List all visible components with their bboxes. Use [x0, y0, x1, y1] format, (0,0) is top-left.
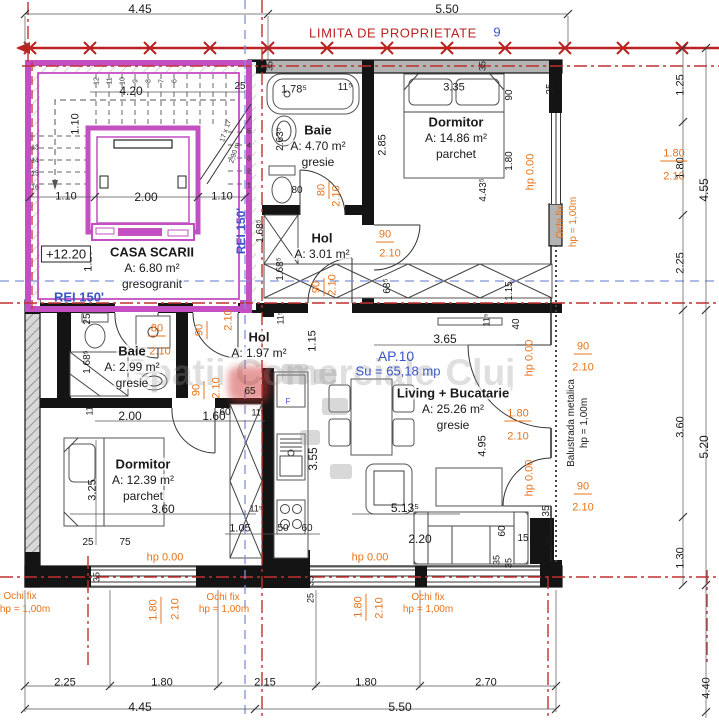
room-label: A: 25.26 m²: [420, 403, 486, 415]
dimension-label: 2.20: [408, 533, 431, 545]
watermark-logo: [330, 464, 352, 479]
dimension-label: 15: [517, 534, 528, 544]
stair-step-number: 7: [159, 79, 166, 83]
dimension-label: 60: [498, 525, 508, 536]
dimension-label: 2.63⁵: [276, 127, 286, 151]
dimension-label: 1.80: [505, 151, 515, 170]
dimension-label: 60: [301, 524, 312, 534]
dimension-label: 11⁵: [86, 402, 95, 415]
apartment-id: AP.10: [378, 349, 414, 363]
room-label: gresie: [114, 377, 151, 389]
floor-plan: Spatii Comerciale Cluj 4.455.504.20251.1…: [0, 0, 719, 720]
watermark-logo: [300, 430, 320, 445]
opening-dimension-label: 90: [574, 342, 592, 355]
dimension-label: 35: [479, 61, 488, 71]
fire-rating-label: REI 150': [235, 208, 247, 254]
opening-dimension-label: 2.10: [379, 249, 400, 260]
opening-dimension-label: 1.80: [149, 596, 162, 623]
opening-dimension-label: Ochi fix: [206, 593, 239, 603]
opening-dimension-label: 2.10: [507, 432, 528, 443]
opening-dimension-label: 2.10: [332, 185, 343, 206]
dimension-label: 1.30: [676, 547, 687, 568]
stair-step-number: 14: [31, 158, 39, 165]
stair-step-number: 11: [107, 77, 114, 84]
opening-dimension-label: 1.80: [504, 409, 531, 422]
room-label: Hol: [310, 232, 335, 245]
dimension-label: 40: [512, 318, 522, 329]
opening-dimension-label: hp = 1,00m: [403, 605, 453, 615]
opening-dimension-label: 2.10: [224, 309, 235, 330]
opening-dimension-label: 90: [574, 482, 592, 495]
stair-step-number: 15: [31, 171, 39, 178]
dimension-label: 25: [82, 538, 93, 548]
dimension-label: 1.68⁵: [83, 350, 93, 374]
opening-dimension-label: 2.10: [375, 597, 386, 618]
room-label: Baie: [116, 345, 147, 358]
dimension-label: 4.45: [128, 701, 151, 713]
opening-dimension-label: hp = 1,00m: [0, 605, 50, 615]
dimension-label: 1.10: [55, 192, 76, 203]
dimension-label: 5.20: [698, 435, 710, 458]
axis-number: 9: [493, 26, 500, 39]
watermark-logo: [322, 398, 348, 415]
boundary-label: LIMITA DE PROPRIETATE: [309, 27, 477, 40]
opening-dimension-label: 2.10: [663, 172, 684, 183]
dimension-label: 3.55: [307, 447, 319, 470]
elevator: [88, 128, 198, 240]
dimension-label: 2.00: [134, 191, 157, 203]
dimension-label: 5.50: [435, 3, 458, 15]
dimension-label: 1.78⁵: [281, 85, 307, 96]
dimension-label: 75: [119, 538, 130, 548]
property-limit-line: [16, 42, 719, 54]
dimension-label: 4.45: [128, 3, 151, 15]
room-label: A: 1.97 m²: [229, 347, 288, 359]
railing-note: hp = 1,00m: [580, 398, 590, 448]
stair-step-number: 10: [120, 77, 127, 85]
dimension-label: 4.55: [698, 178, 710, 201]
dimension-label: 5.50: [388, 701, 411, 713]
opening-dimension-label: 1.80: [354, 593, 367, 620]
dimension-label: 35: [493, 555, 502, 565]
dimension-label: 90: [505, 89, 515, 100]
dimension-label: 1.80: [355, 678, 376, 689]
dimension-label: 3.35: [443, 83, 464, 94]
opening-dimension-label: hp 0.00: [526, 154, 537, 191]
room-label: A: 4.70 m²: [288, 140, 347, 152]
dimension-label: 2.15: [254, 678, 275, 689]
dimension-label: 80: [291, 186, 302, 196]
dimension-label: 35: [542, 505, 552, 516]
dimension-label: 1.10: [71, 113, 82, 134]
opening-dimension-label: 90: [192, 381, 205, 399]
opening-dimension-label: 80: [317, 181, 330, 199]
opening-dimension-label: Ochi fix: [411, 593, 444, 603]
dimension-label: 65: [244, 387, 255, 397]
dimension-label: 1.68⁵: [256, 219, 266, 243]
opening-dimension-label: 1.80: [660, 149, 687, 162]
opening-dimension-label: 2.10: [171, 598, 182, 619]
stair-step-number: 4: [247, 143, 251, 150]
opening-dimension-label: Ochi fix: [3, 592, 36, 602]
room-label: Living + Bucatarie: [395, 387, 511, 400]
stair-step-number: 8: [146, 79, 153, 83]
stair-step-number: 6: [172, 79, 179, 83]
dimension-label: 4.95: [478, 435, 489, 456]
opening-dimension-label: hp 0.00: [525, 460, 536, 497]
room-label: A: 3.01 m²: [292, 248, 351, 260]
stair-step-number: 16: [31, 185, 39, 192]
coffee-table: [436, 468, 502, 506]
stair-step-number: 13: [31, 145, 39, 152]
room-label: Baie: [302, 124, 333, 137]
dimension-label: 11⁵: [338, 83, 353, 93]
stair-step-number: 1: [247, 183, 251, 190]
room-label: parchet: [434, 148, 478, 160]
dimension-label: 35: [307, 576, 316, 586]
opening-dimension-label: 2.10: [149, 347, 170, 358]
dimension-label: 25: [234, 82, 245, 92]
room-label: Dormitor: [114, 458, 173, 471]
dimension-label: 35: [545, 534, 555, 545]
opening-dimension-label: hp 0.00: [525, 340, 536, 377]
fire-rating-label: REI 150': [54, 291, 104, 304]
opening-dimension-label: 2.10: [212, 377, 223, 398]
dimension-label: 3.60: [676, 416, 687, 437]
dimension-label: 11⁵: [277, 311, 286, 324]
dimension-label: 2.85: [378, 134, 389, 155]
room-label: gresie: [300, 156, 337, 168]
stair-step-number: 9: [133, 79, 140, 83]
stair-step-number: 12: [94, 77, 101, 85]
dimension-label: 4.20: [119, 85, 142, 97]
dimension-label: 35: [266, 61, 275, 71]
dimension-label: 1.80: [151, 678, 172, 689]
dimension-label: 4.40: [702, 677, 713, 698]
room-label: A: 6.80 m²: [122, 262, 181, 274]
opening-dimension-label: 2.10: [572, 503, 593, 514]
dimension-label: 11⁵: [483, 313, 492, 326]
dimension-label: 3.65: [433, 333, 456, 345]
dimension-label: 2.70: [475, 678, 496, 689]
dimension-label: 2.25: [54, 678, 75, 689]
dimension-label: 25: [307, 593, 316, 603]
stair-step-number: 3: [247, 156, 251, 163]
room-label: A: 12.39 m²: [110, 474, 176, 486]
railing-note: Balustrada metalica: [567, 379, 577, 467]
opening-dimension-label: hp 0.00: [352, 553, 389, 564]
dimension-label: 2.25: [676, 252, 687, 273]
opening-dimension-label: 90: [195, 321, 208, 339]
dimension-label: 50: [277, 524, 288, 534]
dimension-label: 1.68⁵: [276, 257, 286, 281]
dimension-label: 68⁵: [383, 278, 393, 293]
opening-dimension-label: 90: [312, 278, 325, 296]
dimension-label: 3.25: [88, 479, 99, 500]
watermark-logo: [282, 364, 308, 384]
stair-step-number: 5: [247, 129, 251, 136]
room-label: parchet: [121, 490, 165, 502]
dimension-label: 11⁵: [251, 409, 264, 418]
dimension-label: 3.60: [151, 503, 174, 515]
dimension-label: 35: [505, 558, 514, 568]
dimension-label: 35: [546, 83, 556, 94]
dimension-label: 1.25: [676, 74, 687, 95]
room-label: Dormitor: [427, 116, 486, 129]
dimension-label: 1.60: [202, 410, 225, 422]
dimension-label: 11⁵: [249, 505, 262, 514]
dimension-label: 4.43⁵: [479, 178, 489, 202]
opening-dimension-label: hp 0.00: [147, 553, 184, 564]
dimension-label: 1.10: [211, 192, 232, 203]
dimension-label: 1.15: [308, 330, 319, 351]
opening-dimension-label: 2.10: [328, 274, 339, 295]
room-label: CASA SCARII: [108, 246, 196, 259]
fridge-label: F: [286, 398, 291, 406]
opening-dimension-label: Ochi fix: [556, 205, 566, 238]
opening-dimension-label: 90: [376, 230, 394, 243]
room-label: A: 2.99 m²: [102, 361, 161, 373]
opening-dimension-label: hp = 1,00m: [569, 197, 579, 247]
room-label: gresogranit: [120, 278, 184, 290]
watermark-logo: [314, 369, 336, 384]
room-label: Hol: [247, 331, 272, 344]
dimension-label: 2.00: [118, 410, 141, 422]
level-label: +12.20: [41, 246, 91, 263]
room-label: gresie: [435, 419, 472, 431]
dimension-label: 1.15: [505, 281, 515, 300]
opening-dimension-label: 80: [148, 324, 166, 337]
dimension-label: 5.13⁵: [391, 502, 419, 514]
stair-step-number: 2: [247, 169, 251, 176]
opening-dimension-label: hp = 1,00m: [199, 605, 249, 615]
dimension-label: 25: [83, 313, 93, 324]
room-label: A: 14.86 m²: [423, 132, 489, 144]
opening-dimension-label: 2.10: [572, 363, 593, 374]
dimension-label: 35: [93, 572, 102, 582]
apartment-area: Su = 65,18 mp: [356, 365, 441, 378]
dimension-label: 1.05: [229, 524, 250, 535]
